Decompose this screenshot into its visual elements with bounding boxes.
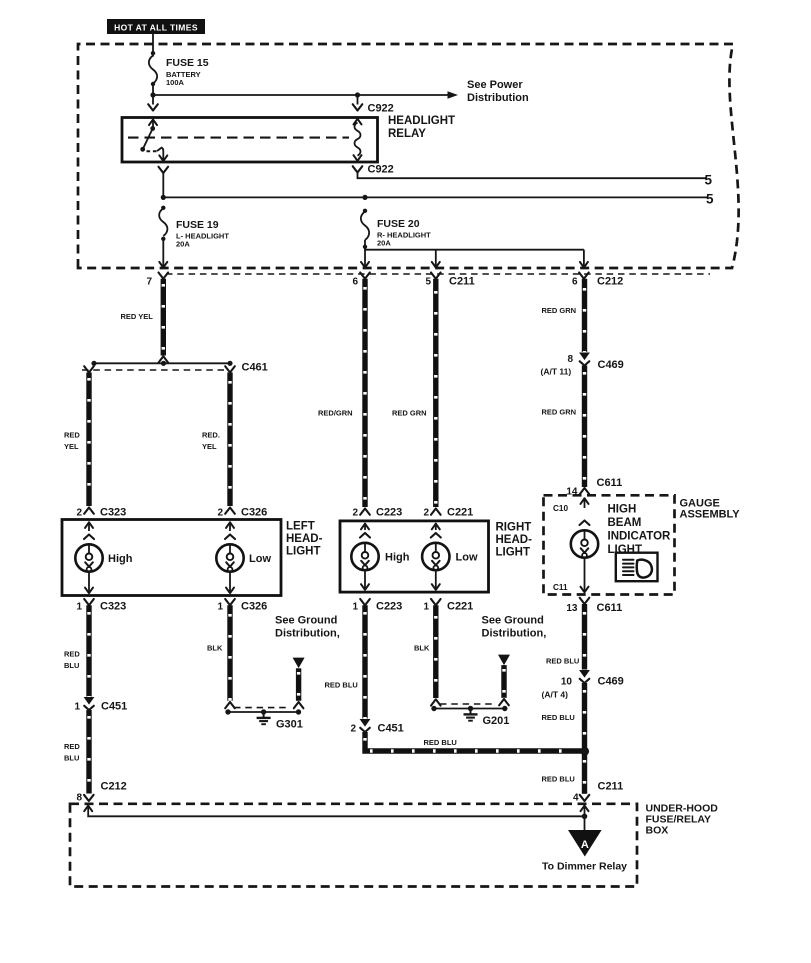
svg-text:INDICATOR: INDICATOR (608, 531, 672, 543)
svg-text:LIGHT: LIGHT (608, 544, 643, 556)
svg-text:C326: C326 (241, 601, 267, 613)
svg-text:8: 8 (76, 793, 82, 804)
svg-text:BEAM: BEAM (608, 517, 642, 529)
svg-text:C469: C469 (598, 359, 624, 371)
svg-text:FUSE 20: FUSE 20 (377, 218, 420, 230)
svg-text:C211: C211 (449, 276, 475, 288)
svg-text:BLK: BLK (207, 644, 223, 653)
svg-text:(A/T 11): (A/T 11) (541, 367, 572, 377)
svg-text:1: 1 (74, 702, 80, 713)
svg-text:C212: C212 (597, 276, 623, 288)
svg-text:1: 1 (76, 602, 82, 613)
svg-text:C469: C469 (598, 676, 624, 688)
svg-text:Distribution,: Distribution, (275, 628, 340, 640)
svg-text:RED GRN: RED GRN (542, 306, 577, 315)
svg-text:RED BLU: RED BLU (542, 775, 575, 784)
svg-text:5: 5 (705, 172, 713, 187)
svg-text:RED GRN: RED GRN (392, 409, 427, 418)
svg-text:C451: C451 (101, 701, 127, 713)
svg-text:C611: C611 (597, 477, 623, 489)
svg-text:G301: G301 (276, 719, 303, 731)
svg-text:C211: C211 (598, 781, 624, 793)
svg-text:BLK: BLK (414, 644, 430, 653)
svg-text:C461: C461 (242, 362, 268, 374)
svg-text:5: 5 (425, 277, 431, 288)
svg-text:C221: C221 (447, 507, 473, 519)
svg-text:C323: C323 (100, 601, 126, 613)
svg-text:C221: C221 (447, 601, 473, 613)
svg-text:C10: C10 (553, 504, 568, 513)
svg-text:8: 8 (567, 354, 573, 365)
svg-text:See Ground: See Ground (482, 615, 544, 627)
svg-text:RED: RED (64, 742, 80, 751)
svg-text:C212: C212 (101, 781, 127, 793)
svg-text:RED YEL: RED YEL (121, 312, 154, 321)
svg-text:C223: C223 (376, 601, 402, 613)
svg-text:C922: C922 (368, 164, 394, 176)
svg-text:20A: 20A (176, 240, 190, 249)
svg-text:See Power: See Power (467, 79, 523, 91)
svg-text:RED BLU: RED BLU (424, 738, 457, 747)
svg-text:HOT AT ALL TIMES: HOT AT ALL TIMES (114, 23, 198, 33)
svg-text:RED: RED (64, 431, 80, 440)
svg-text:To Dimmer Relay: To Dimmer Relay (542, 861, 627, 873)
svg-text:HIGH: HIGH (608, 504, 637, 516)
svg-text:YEL: YEL (202, 442, 217, 451)
svg-text:RELAY: RELAY (388, 128, 426, 140)
svg-text:C323: C323 (100, 507, 126, 519)
svg-text:1: 1 (217, 602, 223, 613)
svg-text:BOX: BOX (646, 825, 669, 837)
svg-text:2: 2 (350, 724, 356, 735)
svg-text:RED BLU: RED BLU (325, 681, 358, 690)
svg-text:ASSEMBLY: ASSEMBLY (680, 509, 741, 521)
svg-text:RED: RED (64, 650, 80, 659)
svg-text:Distribution: Distribution (467, 92, 529, 104)
svg-text:LIGHT: LIGHT (496, 547, 531, 559)
svg-text:7: 7 (146, 277, 152, 288)
svg-text:RIGHT: RIGHT (496, 522, 532, 534)
svg-text:1: 1 (352, 602, 358, 613)
svg-text:HEADLIGHT: HEADLIGHT (388, 115, 455, 127)
svg-text:1: 1 (423, 602, 429, 613)
svg-text:C451: C451 (378, 723, 404, 735)
svg-text:C922: C922 (368, 103, 394, 115)
svg-text:BLU: BLU (64, 661, 79, 670)
svg-text:4: 4 (573, 793, 579, 804)
svg-text:RED GRN: RED GRN (542, 408, 577, 417)
svg-text:2: 2 (352, 508, 358, 519)
svg-text:C611: C611 (597, 602, 623, 614)
svg-text:Distribution,: Distribution, (482, 628, 547, 640)
svg-text:2: 2 (423, 508, 429, 519)
svg-text:RED BLU: RED BLU (546, 657, 579, 666)
svg-text:C223: C223 (376, 507, 402, 519)
svg-text:G201: G201 (483, 715, 510, 727)
svg-text:5: 5 (706, 192, 714, 207)
svg-text:10: 10 (561, 677, 573, 688)
svg-text:2: 2 (76, 508, 82, 519)
svg-text:13: 13 (566, 603, 578, 614)
svg-text:(A/T 4): (A/T 4) (542, 690, 569, 700)
svg-text:6: 6 (352, 277, 358, 288)
svg-text:BLU: BLU (64, 754, 79, 763)
svg-text:C326: C326 (241, 507, 267, 519)
svg-text:Low: Low (456, 552, 478, 564)
svg-text:RED.: RED. (202, 431, 220, 440)
svg-text:HEAD-: HEAD- (496, 534, 533, 546)
svg-text:See Ground: See Ground (275, 615, 337, 627)
svg-text:FUSE 15: FUSE 15 (166, 57, 209, 69)
svg-text:HEAD-: HEAD- (286, 533, 323, 545)
svg-text:C11: C11 (553, 583, 568, 592)
svg-text:LEFT: LEFT (286, 521, 315, 533)
svg-text:RED/GRN: RED/GRN (318, 409, 353, 418)
svg-text:20A: 20A (377, 239, 391, 248)
svg-text:High: High (385, 552, 410, 564)
svg-text:100A: 100A (166, 78, 185, 87)
svg-text:YEL: YEL (64, 442, 79, 451)
svg-text:LIGHT: LIGHT (286, 546, 321, 558)
svg-text:FUSE 19: FUSE 19 (176, 219, 219, 231)
svg-text:Low: Low (249, 553, 271, 565)
svg-text:2: 2 (217, 508, 223, 519)
svg-text:RED BLU: RED BLU (542, 713, 575, 722)
svg-text:High: High (108, 553, 133, 565)
svg-text:A: A (581, 839, 589, 851)
svg-text:6: 6 (572, 277, 578, 288)
